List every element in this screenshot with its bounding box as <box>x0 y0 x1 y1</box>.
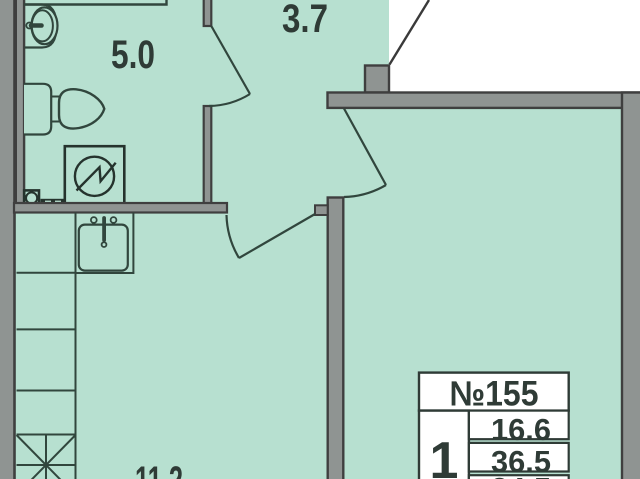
svg-text:1: 1 <box>430 432 459 479</box>
svg-text:3.7: 3.7 <box>282 0 328 41</box>
svg-text:5.0: 5.0 <box>111 33 155 77</box>
svg-text:34.5: 34.5 <box>491 471 551 479</box>
svg-text:16.6: 16.6 <box>491 412 551 447</box>
svg-text:№155: №155 <box>450 375 539 414</box>
svg-text:11.2: 11.2 <box>135 459 183 479</box>
